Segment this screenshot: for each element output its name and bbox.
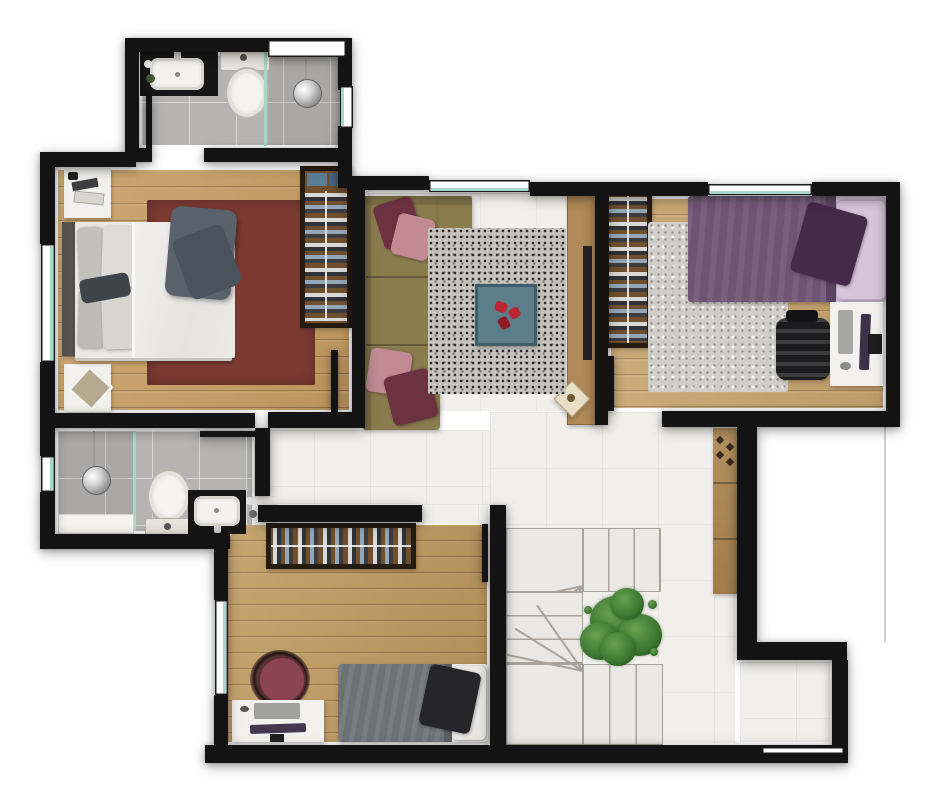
wall (205, 745, 848, 763)
door-leaf-bathroom-top (146, 96, 152, 150)
window-living-room (429, 180, 530, 192)
window-bedroom-right (708, 184, 812, 195)
window-bottom-wall (762, 747, 844, 754)
wall (40, 428, 55, 456)
window-master-bedroom (41, 244, 55, 362)
wall (595, 182, 708, 196)
window-bathroom-left (41, 456, 55, 492)
window-bathroom-side (340, 86, 353, 128)
floor-plan (0, 0, 937, 800)
door-leaf-bedroom-bottom (482, 524, 488, 582)
window-bathroom-top (268, 40, 346, 57)
wall (214, 695, 228, 763)
window-bedroom-bottom (215, 600, 228, 695)
wall (737, 427, 757, 660)
wall (490, 505, 506, 763)
wall (255, 428, 270, 496)
wall (268, 412, 365, 428)
wall (40, 152, 55, 244)
door-leaf-bathroom-left (200, 431, 256, 437)
wall (40, 413, 255, 428)
wall (40, 534, 230, 549)
walls-layer (0, 0, 937, 800)
wall (352, 176, 429, 190)
wall (662, 411, 900, 427)
wall (352, 186, 365, 414)
wall (595, 182, 608, 425)
wall (886, 182, 900, 425)
wall (530, 182, 602, 196)
wall (258, 505, 422, 522)
wall (125, 38, 139, 162)
wall (204, 148, 352, 162)
door-leaf-master-bedroom (331, 350, 338, 414)
door-leaf-bedroom-right (608, 356, 614, 411)
wall (737, 642, 847, 660)
